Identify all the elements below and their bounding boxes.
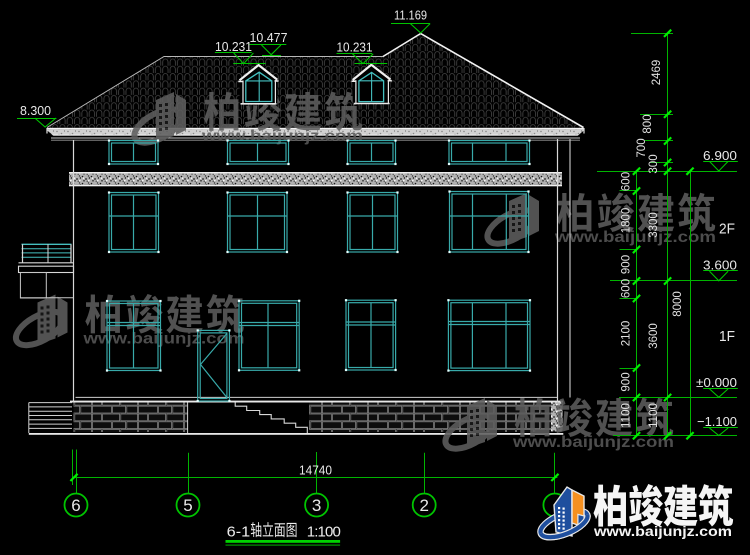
svg-text:2F: 2F	[719, 221, 735, 238]
svg-text:5: 5	[183, 496, 192, 515]
svg-text:8000: 8000	[672, 291, 684, 317]
svg-text:−1.100: −1.100	[697, 414, 737, 429]
svg-text:800: 800	[642, 114, 654, 133]
svg-text:2: 2	[419, 496, 428, 515]
svg-text:8.300: 8.300	[20, 103, 51, 118]
svg-text:10.231: 10.231	[337, 40, 373, 55]
svg-text:3.600: 3.600	[703, 257, 737, 272]
svg-text:1F: 1F	[719, 328, 735, 345]
svg-text:www.baijunjz.com: www.baijunjz.com	[593, 524, 732, 539]
svg-text:900: 900	[621, 372, 633, 391]
svg-text:3: 3	[312, 496, 321, 515]
svg-text:www.baijunjz.com: www.baijunjz.com	[512, 434, 674, 451]
svg-text:6-1: 6-1	[227, 523, 251, 540]
svg-text:1100: 1100	[648, 403, 660, 428]
svg-text:±0.000: ±0.000	[696, 375, 737, 390]
svg-text:14740: 14740	[299, 463, 332, 478]
svg-text:2100: 2100	[621, 321, 633, 347]
svg-text:1800: 1800	[621, 208, 633, 234]
svg-text:6: 6	[71, 496, 80, 515]
svg-text:1100: 1100	[621, 403, 633, 428]
svg-text:700: 700	[636, 138, 648, 157]
svg-text:2469: 2469	[651, 60, 663, 86]
svg-text:600: 600	[621, 279, 633, 298]
svg-text:11.169: 11.169	[394, 8, 427, 23]
svg-text:1:100: 1:100	[307, 523, 341, 540]
svg-text:900: 900	[621, 255, 633, 274]
svg-text:10.231: 10.231	[215, 39, 252, 54]
svg-text:10.477: 10.477	[250, 30, 288, 45]
svg-text:300: 300	[648, 154, 660, 173]
svg-text:3300: 3300	[648, 212, 660, 238]
svg-text:3600: 3600	[648, 323, 660, 349]
svg-text:www.baijunjz.com: www.baijunjz.com	[554, 229, 716, 246]
svg-text:600: 600	[621, 172, 633, 191]
svg-text:6.900: 6.900	[703, 148, 737, 163]
